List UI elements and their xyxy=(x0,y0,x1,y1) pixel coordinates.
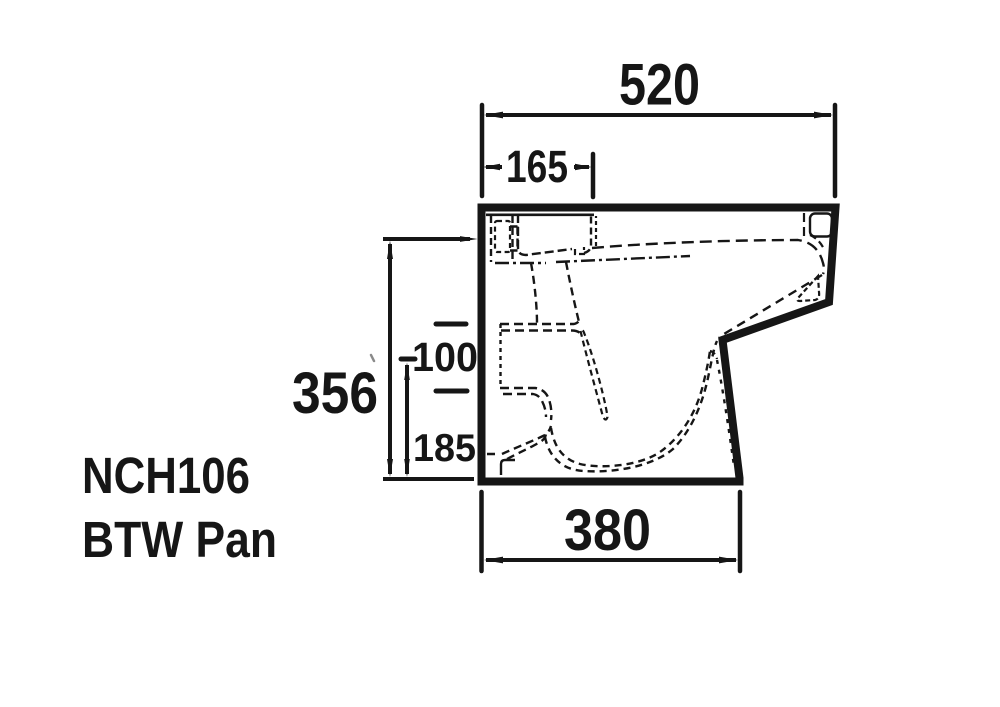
svg-text:356: 356 xyxy=(292,361,378,426)
svg-text:100: 100 xyxy=(412,334,478,380)
svg-text:520: 520 xyxy=(619,53,700,118)
svg-text:165: 165 xyxy=(506,141,568,192)
svg-text:185: 185 xyxy=(413,427,476,470)
svg-text:NCH106: NCH106 xyxy=(82,447,250,504)
svg-text:380: 380 xyxy=(564,498,651,563)
svg-text:BTW Pan: BTW Pan xyxy=(82,511,277,568)
